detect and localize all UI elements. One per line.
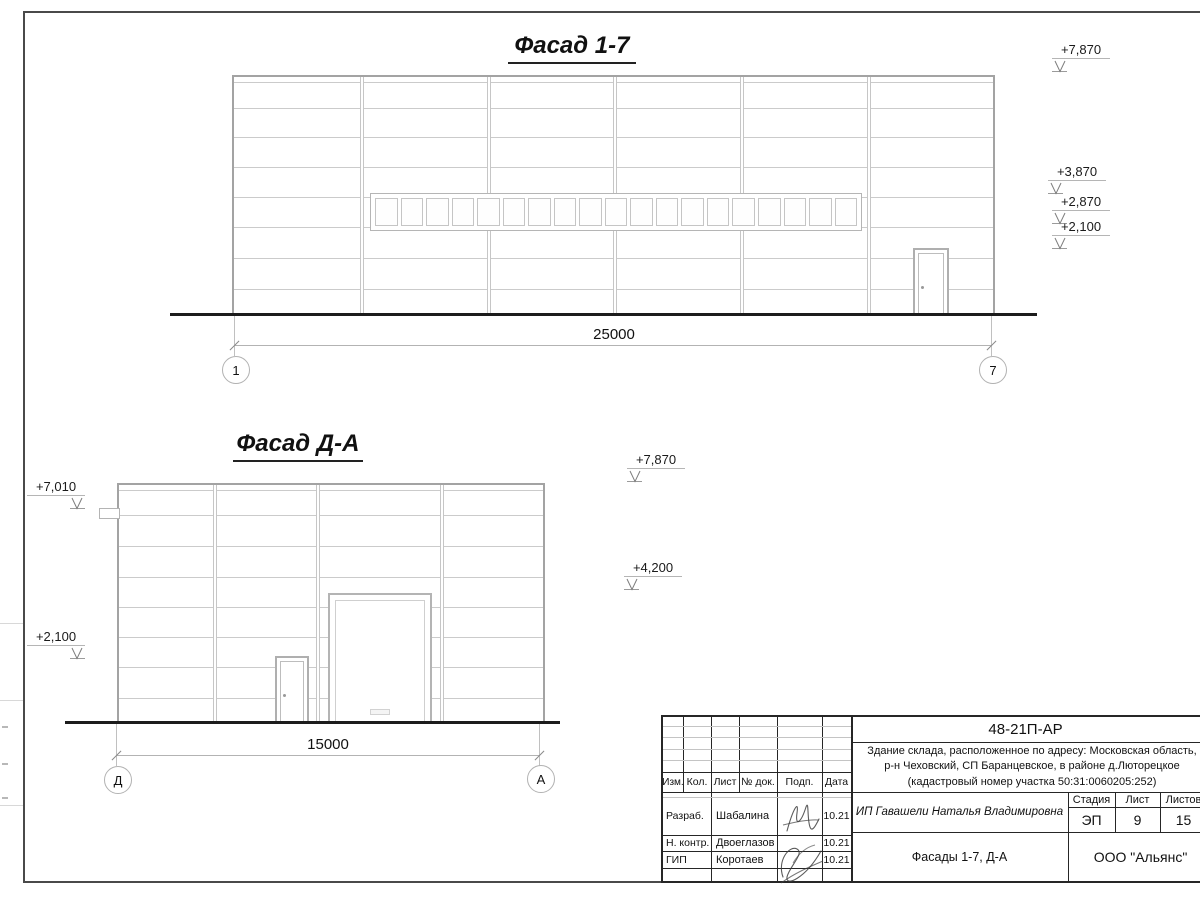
entrance-door [913, 248, 949, 315]
rev-col-data: Дата [822, 772, 851, 792]
panel-joint-line [119, 546, 543, 547]
margin-divider [0, 700, 23, 701]
window-pane [758, 198, 781, 226]
elevation-value: +7,010 [27, 479, 85, 495]
elevation-mark: +7,870 [1052, 42, 1110, 73]
facade-da-building [117, 483, 545, 723]
window-pane [630, 198, 653, 226]
window-pane [835, 198, 858, 226]
gate-handle [370, 709, 390, 715]
grid-bubble-1: 1 [222, 356, 250, 384]
elevation-mark: +7,870 [627, 452, 685, 483]
sheets-total: 15 [1160, 807, 1200, 832]
drain-outlet [99, 508, 120, 519]
rev-col-podp: Подп. [777, 772, 822, 792]
margin-divider [0, 623, 23, 624]
margin-divider [0, 805, 23, 806]
extension-line [234, 316, 235, 356]
sheet-title: Фасады 1-7, Д-А [851, 832, 1068, 881]
staff-name: Коротаев [713, 851, 777, 868]
staff-role: Разраб. [663, 797, 711, 835]
column-line [440, 485, 444, 723]
elevation-arrow-icon [69, 646, 85, 660]
window-band [370, 193, 862, 231]
door-leaf [918, 253, 944, 313]
window-pane [605, 198, 628, 226]
elevation-value: +3,870 [1048, 164, 1106, 180]
window-pane [503, 198, 526, 226]
window-pane [528, 198, 551, 226]
elevation-arrow-icon [624, 577, 640, 591]
column-line [867, 77, 871, 315]
titleblock-line [711, 717, 712, 881]
elevation-mark: +3,870 [1048, 164, 1106, 195]
stage-value: ЭП [1068, 807, 1115, 832]
grid-bubble-7: 7 [979, 356, 1007, 384]
entrance-door [275, 656, 309, 723]
extension-line [991, 316, 992, 356]
window-pane [809, 198, 832, 226]
signature-icon [773, 833, 827, 887]
staff-name: Шабалина [713, 797, 777, 835]
elevation-arrow-icon [1052, 236, 1068, 250]
dimension-line [235, 345, 992, 346]
window-pane [656, 198, 679, 226]
organization-name: ООО "Альянс" [1068, 832, 1200, 881]
window-pane [426, 198, 449, 226]
elevation-mark: +2,100 [1052, 219, 1110, 250]
panel-joint-line [119, 515, 543, 516]
window-pane [477, 198, 500, 226]
extension-line [116, 724, 117, 766]
door-knob [283, 694, 286, 697]
elevation-mark: +4,200 [624, 560, 682, 591]
window-pane [681, 198, 704, 226]
elevation-value: +4,200 [624, 560, 682, 576]
window-pane [375, 198, 398, 226]
facade-da-title: Фасад Д-А [233, 430, 363, 462]
elevation-arrow-icon [69, 496, 85, 510]
drawing-sheet: Фасад 1-7 25000 1 7 +7,870 +3,870 [0, 0, 1200, 900]
elevation-value: +2,100 [1052, 219, 1110, 235]
stage-header: Стадия [1068, 792, 1115, 807]
frame-top-line [23, 11, 1200, 13]
window-pane [579, 198, 602, 226]
frame-left-line [23, 11, 25, 883]
window-pane [784, 198, 807, 226]
ground-line [170, 313, 1037, 316]
staff-role: ГИП [663, 851, 711, 868]
margin-mark [2, 797, 8, 799]
facade-1-7-building [232, 75, 995, 315]
signature-icon [779, 797, 821, 837]
sheet-header: Лист [1115, 792, 1160, 807]
sheets-header: Листов [1160, 792, 1200, 807]
elevation-arrow-icon [1048, 181, 1064, 195]
door-knob [921, 286, 924, 289]
elevation-mark: +7,010 [27, 479, 85, 510]
sheet-number: 9 [1115, 807, 1160, 832]
window-pane [554, 198, 577, 226]
project-line: р-н Чеховский, СП Баранцевское, в районе… [884, 759, 1180, 775]
panel-joint-line [119, 577, 543, 578]
project-line: Здание склада, расположенное по адресу: … [867, 744, 1196, 760]
elevation-mark: +2,100 [27, 629, 85, 660]
elevation-arrow-icon [1052, 59, 1068, 73]
titleblock-line [663, 737, 851, 738]
elevation-value: +7,870 [627, 452, 685, 468]
facade-1-7-title: Фасад 1-7 [508, 32, 636, 64]
column-line [213, 485, 217, 723]
project-description: Здание склада, расположенное по адресу: … [853, 743, 1200, 791]
margin-mark [2, 726, 8, 728]
grid-bubble-a: А [527, 765, 555, 793]
project-line: (кадастровый номер участка 50:31:0060205… [908, 775, 1157, 791]
titleblock-line [663, 726, 851, 727]
panel-joint-line [119, 490, 543, 491]
elevation-value: +2,100 [27, 629, 85, 645]
staff-name: Двоеглазов [713, 835, 777, 851]
window-pane [707, 198, 730, 226]
elevation-arrow-icon [627, 469, 643, 483]
elevation-value: +7,870 [1052, 42, 1110, 58]
rev-col-izm: Изм. [663, 772, 683, 792]
titleblock-line [663, 749, 851, 750]
dimension-line [117, 755, 540, 756]
document-number: 48-21П-АР [851, 717, 1200, 742]
rev-col-ndok: № док. [739, 772, 777, 792]
client-name: ИП Гавашели Наталья Владимировна [851, 792, 1068, 832]
ground-line [65, 721, 560, 724]
window-pane [401, 198, 424, 226]
column-line [360, 77, 364, 315]
staff-role: Н. контр. [663, 835, 711, 851]
door-leaf [280, 661, 304, 721]
titleblock-line [663, 760, 851, 761]
rev-col-list: Лист [711, 772, 739, 792]
rev-col-kol: Кол. [683, 772, 711, 792]
elevation-value: +2,870 [1052, 194, 1110, 210]
column-line [316, 485, 320, 723]
title-block: Изм. Кол. Лист № док. Подп. Дата Разраб.… [661, 715, 1200, 883]
window-pane [732, 198, 755, 226]
window-pane [452, 198, 475, 226]
staff-date: 10.21 [822, 797, 851, 835]
dimension-value: 15000 [278, 736, 378, 753]
dimension-value: 25000 [564, 326, 664, 343]
gate-leaf [335, 600, 425, 721]
sectional-gate [328, 593, 432, 723]
margin-mark [2, 763, 8, 765]
grid-bubble-d: Д [104, 766, 132, 794]
extension-line [539, 724, 540, 766]
